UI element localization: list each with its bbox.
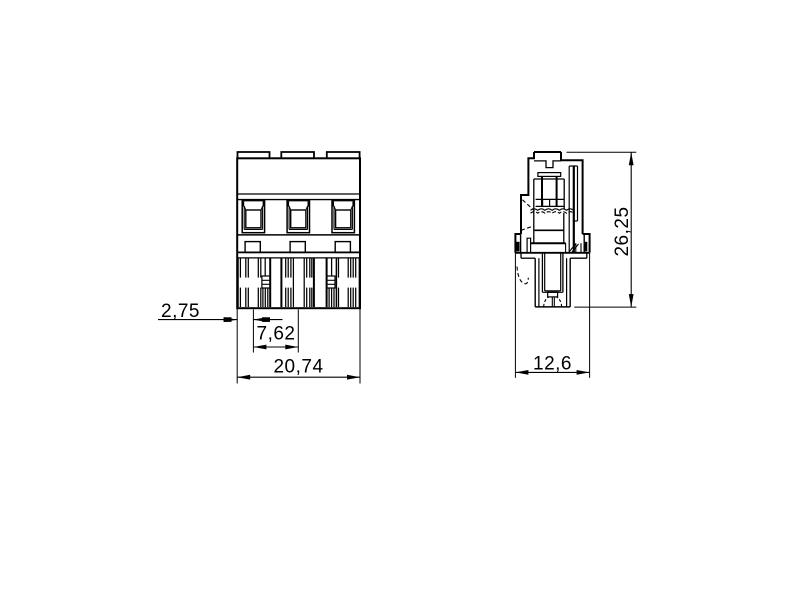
- svg-text:2,75: 2,75: [161, 301, 200, 322]
- svg-text:7,62: 7,62: [257, 324, 296, 345]
- svg-text:20,74: 20,74: [273, 356, 323, 377]
- svg-text:26,25: 26,25: [612, 206, 633, 256]
- svg-text:12,6: 12,6: [533, 353, 572, 374]
